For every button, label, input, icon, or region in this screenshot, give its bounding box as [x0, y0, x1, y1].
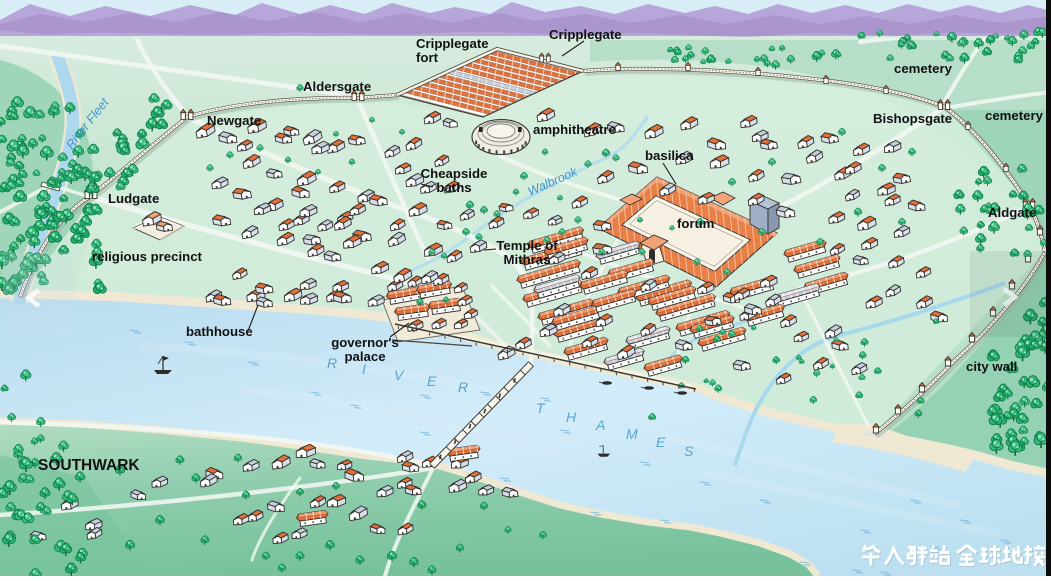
- svg-text:T: T: [536, 400, 546, 416]
- svg-text:bathhouse: bathhouse: [186, 324, 253, 339]
- svg-text:I: I: [362, 361, 366, 377]
- svg-text:Cripplegate: Cripplegate: [549, 27, 622, 42]
- svg-text:city wall: city wall: [966, 359, 1017, 374]
- svg-text:Bishopsgate: Bishopsgate: [873, 111, 952, 126]
- svg-text:baths: baths: [436, 180, 471, 195]
- svg-text:S: S: [684, 443, 694, 459]
- svg-text:Cheapside: Cheapside: [421, 166, 488, 181]
- svg-text:Ludgate: Ludgate: [108, 191, 159, 206]
- svg-text:SOUTHWARK: SOUTHWARK: [38, 457, 140, 474]
- svg-text:basilica: basilica: [645, 148, 694, 163]
- svg-text:R: R: [327, 355, 337, 371]
- svg-text:Mithras: Mithras: [504, 252, 551, 267]
- svg-text:cemetery: cemetery: [894, 61, 953, 76]
- svg-text:E: E: [427, 373, 437, 389]
- svg-text:Aldersgate: Aldersgate: [303, 79, 371, 94]
- svg-text:Cripplegate: Cripplegate: [416, 36, 489, 51]
- svg-text:H: H: [566, 409, 577, 425]
- svg-text:E: E: [656, 434, 666, 450]
- svg-text:cemetery: cemetery: [985, 108, 1044, 123]
- svg-text:forum: forum: [677, 216, 714, 231]
- svg-text:A: A: [595, 417, 605, 433]
- svg-text:Aldgate: Aldgate: [988, 205, 1036, 220]
- svg-text:amphitheatre: amphitheatre: [533, 122, 616, 137]
- svg-text:fort: fort: [416, 50, 439, 65]
- svg-text:R: R: [458, 379, 468, 395]
- svg-text:religious precinct: religious precinct: [92, 249, 203, 264]
- svg-text:M: M: [626, 426, 638, 442]
- svg-text:Temple of: Temple of: [496, 238, 558, 253]
- svg-text:governor's: governor's: [331, 335, 399, 350]
- svg-text:Newgate: Newgate: [207, 113, 261, 128]
